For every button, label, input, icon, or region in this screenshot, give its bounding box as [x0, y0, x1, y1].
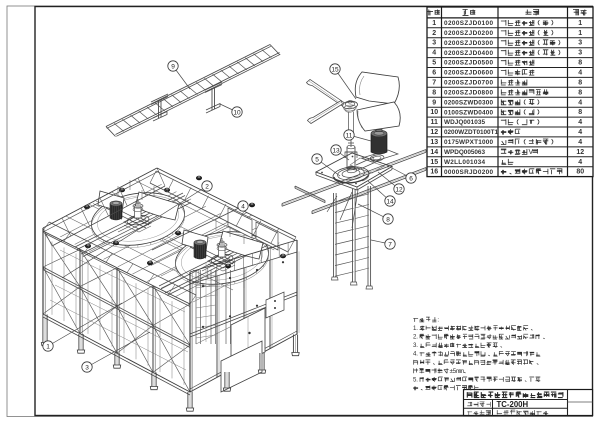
svg-text:.: . [416, 325, 418, 332]
svg-text:6: 6 [409, 175, 413, 182]
svg-text:TC-200H: TC-200H [497, 400, 529, 409]
svg-text:8: 8 [578, 60, 582, 67]
svg-text:14: 14 [430, 149, 438, 156]
svg-text:7: 7 [432, 79, 436, 86]
svg-text:0200SZJD0500: 0200SZJD0500 [444, 60, 493, 67]
svg-text:V: V [529, 149, 534, 156]
svg-text:15: 15 [430, 159, 438, 166]
svg-text:1: 1 [46, 343, 50, 350]
svg-text:m: m [459, 368, 464, 375]
svg-text:3: 3 [578, 50, 582, 57]
svg-text:5: 5 [432, 60, 436, 67]
svg-text:4: 4 [578, 139, 582, 146]
svg-text:0200SZJD0800: 0200SZJD0800 [444, 89, 493, 96]
svg-text:.: . [416, 376, 418, 383]
svg-text:W2LL001034: W2LL001034 [444, 159, 485, 166]
svg-text:4: 4 [578, 129, 582, 136]
svg-text:15: 15 [331, 66, 339, 73]
svg-text:2: 2 [205, 183, 209, 190]
svg-text:0175WPXT1000: 0175WPXT1000 [444, 139, 493, 146]
svg-text:4: 4 [241, 203, 245, 210]
svg-text:4: 4 [578, 119, 582, 126]
svg-text:5: 5 [315, 156, 319, 163]
svg-text:0200SZJD0100: 0200SZJD0100 [444, 20, 493, 27]
svg-text:3: 3 [578, 40, 582, 47]
svg-text:0100SZWD0400: 0100SZWD0400 [444, 109, 493, 116]
svg-text:4: 4 [432, 50, 436, 57]
svg-text:0200SZJD0600: 0200SZJD0600 [444, 70, 493, 77]
svg-text:8: 8 [578, 109, 582, 116]
svg-text:1: 1 [578, 20, 582, 27]
svg-text:0200WZDT0100T1: 0200WZDT0100T1 [444, 129, 498, 136]
svg-text:4: 4 [578, 70, 582, 77]
svg-text:10: 10 [430, 109, 438, 116]
svg-text:11: 11 [431, 119, 439, 126]
svg-text:WPDQ005063: WPDQ005063 [444, 149, 485, 156]
svg-text:8: 8 [578, 89, 582, 96]
svg-text:9: 9 [171, 63, 175, 70]
svg-text:12: 12 [430, 129, 438, 136]
svg-text:13: 13 [430, 139, 438, 146]
svg-text:7: 7 [388, 241, 392, 248]
svg-text:9: 9 [432, 99, 436, 106]
svg-text:6: 6 [432, 70, 436, 77]
svg-text:11: 11 [346, 132, 353, 139]
svg-text:.: . [416, 334, 418, 341]
svg-text:.: . [416, 351, 418, 358]
svg-text:0000SRJD0200: 0000SRJD0200 [444, 169, 493, 176]
svg-text:0200SZJD0300: 0200SZJD0300 [444, 40, 493, 47]
svg-text:1: 1 [578, 30, 582, 37]
svg-text:14: 14 [386, 198, 394, 205]
svg-text:8: 8 [432, 89, 436, 96]
svg-text:WDJQ001035: WDJQ001035 [444, 119, 485, 126]
svg-text:10: 10 [233, 109, 241, 116]
svg-text:80: 80 [576, 169, 584, 176]
svg-text:8: 8 [386, 216, 390, 223]
svg-text:0200SZJD0400: 0200SZJD0400 [444, 50, 493, 57]
svg-text:3: 3 [85, 364, 89, 371]
svg-text:12: 12 [395, 186, 403, 193]
svg-text:0200SZJD0200: 0200SZJD0200 [444, 30, 493, 37]
svg-text:4: 4 [578, 99, 582, 106]
svg-text:16: 16 [430, 169, 438, 176]
svg-text:0200SZJD0700: 0200SZJD0700 [444, 80, 493, 87]
svg-text:1: 1 [432, 20, 436, 27]
svg-text:4: 4 [578, 159, 582, 166]
svg-text:3: 3 [432, 40, 436, 47]
svg-text:0200SZWD0300: 0200SZWD0300 [444, 99, 493, 106]
svg-text:8: 8 [578, 79, 582, 86]
svg-text::: : [437, 317, 439, 324]
svg-text:13: 13 [332, 147, 340, 154]
svg-text:2: 2 [432, 30, 436, 37]
svg-text:.: . [416, 342, 418, 349]
svg-text:12: 12 [576, 149, 584, 156]
